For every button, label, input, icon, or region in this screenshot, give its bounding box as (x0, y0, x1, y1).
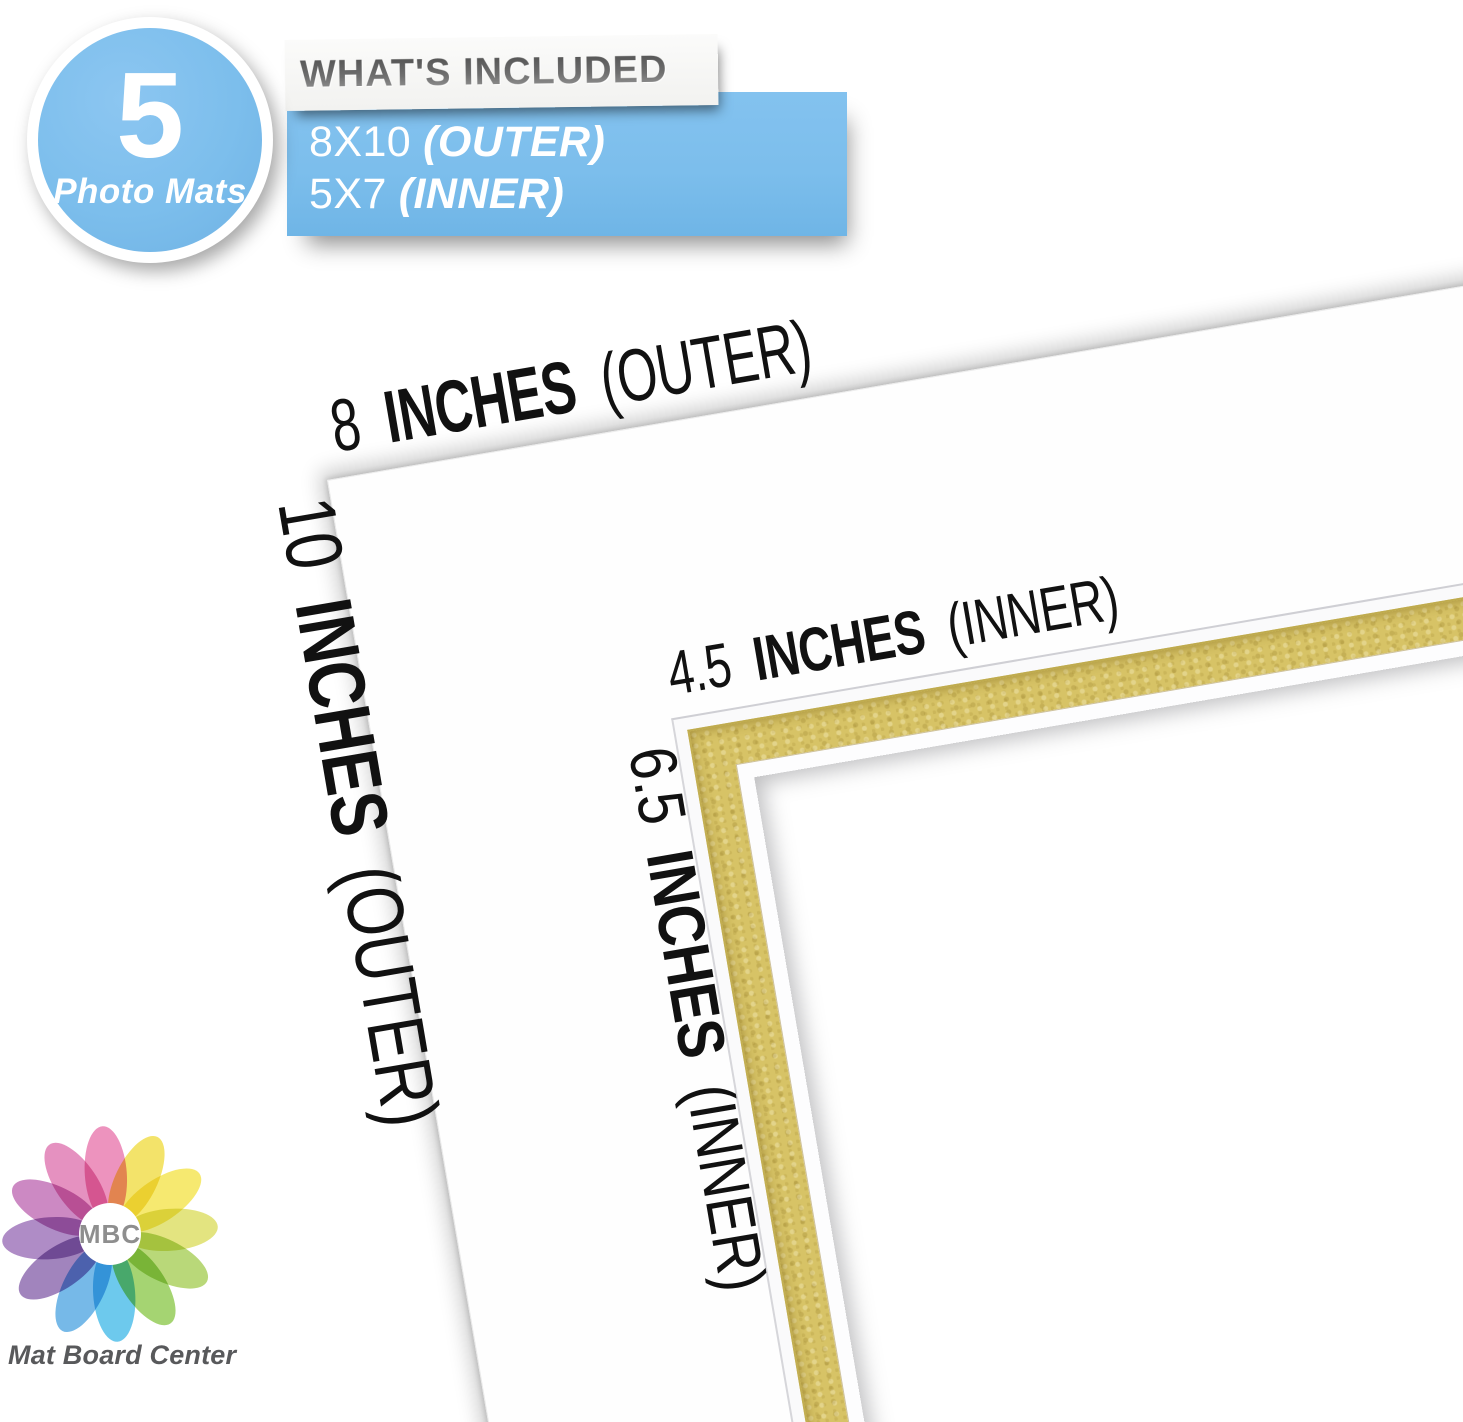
outer-size-tag: (OUTER) (423, 118, 605, 166)
included-size-line-inner: 5X7 (INNER) (309, 168, 847, 220)
inner-size-tag: (INNER) (399, 170, 564, 218)
inner-size-text: 5X7 (309, 170, 387, 218)
included-sizes-ribbon: 8X10 (OUTER) 5X7 (INNER) (287, 92, 847, 236)
brand-logo: MBC Mat Board Center (0, 1124, 300, 1344)
logo-monogram: MBC (79, 1219, 141, 1249)
flower-logo-icon: MBC (0, 1124, 220, 1344)
dimension-value: 8 (324, 381, 366, 468)
pack-count: 5 (116, 62, 184, 169)
whats-included-banner: WHAT'S INCLUDED (285, 34, 719, 111)
included-size-line-outer: 8X10 (OUTER) (309, 116, 847, 168)
whats-included-title: WHAT'S INCLUDED (300, 49, 668, 97)
dimension-value: 10 (261, 491, 361, 575)
pack-count-badge-circle: 5 Photo Mats (38, 28, 262, 252)
dimension-value: 6.5 (615, 741, 701, 829)
product-infographic: 8 INCHES (OUTER) 10 INCHES (OUTER) 4.5 I… (0, 0, 1463, 1422)
brand-name: Mat Board Center (8, 1340, 288, 1371)
pack-count-badge: 5 Photo Mats (27, 17, 273, 263)
outer-size-text: 8X10 (309, 118, 411, 166)
dimension-value: 4.5 (662, 630, 736, 709)
pack-count-label: Photo Mats (53, 172, 247, 212)
